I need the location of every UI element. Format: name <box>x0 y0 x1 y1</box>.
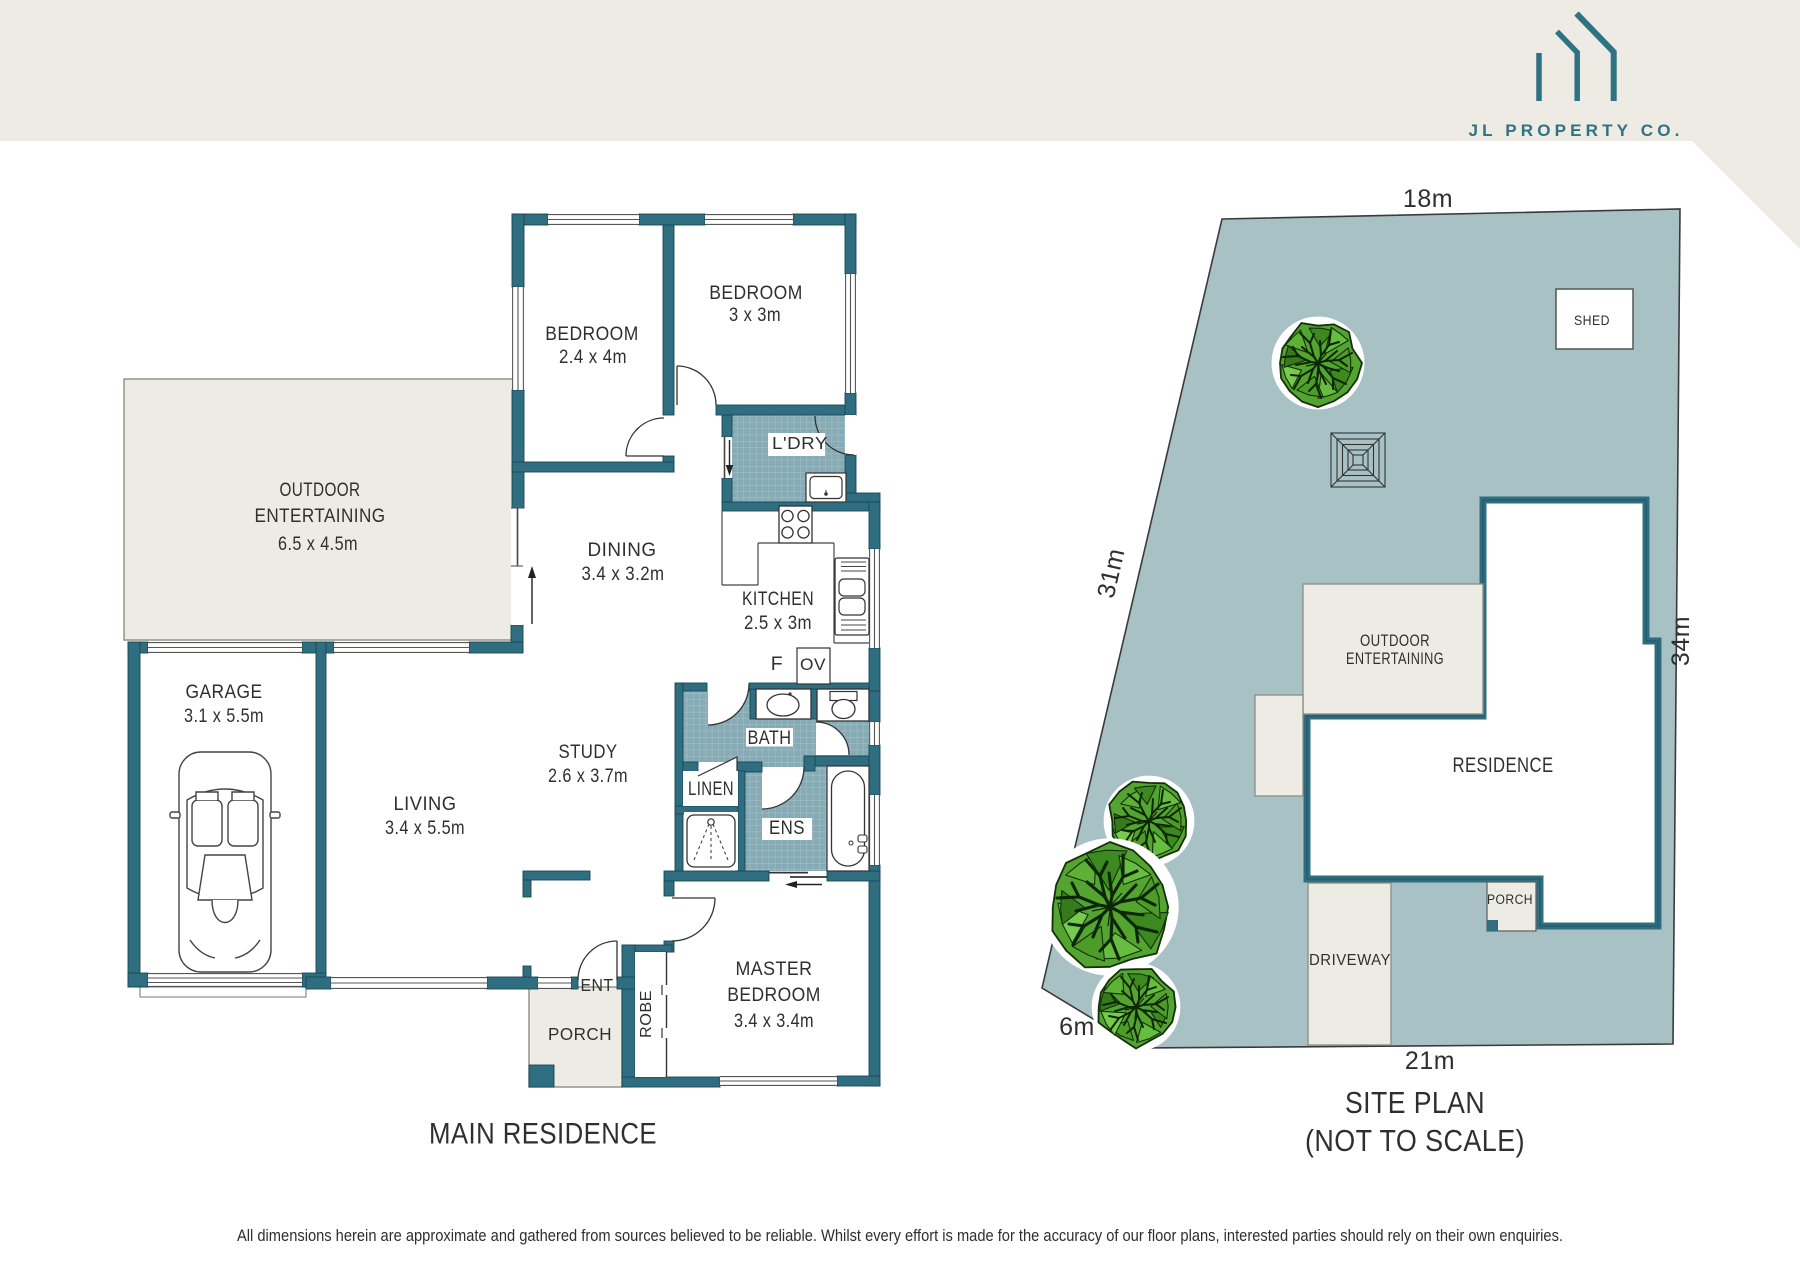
svg-text:RESIDENCE: RESIDENCE <box>1453 754 1554 777</box>
svg-text:3.4 x 5.5m: 3.4 x 5.5m <box>385 817 465 839</box>
svg-text:21m: 21m <box>1405 1047 1455 1075</box>
svg-text:BEDROOM: BEDROOM <box>727 984 821 1006</box>
svg-text:PORCH: PORCH <box>548 1024 612 1044</box>
svg-text:3 x 3m: 3 x 3m <box>729 304 781 326</box>
svg-text:34m: 34m <box>1667 616 1695 666</box>
svg-text:F: F <box>771 653 783 675</box>
svg-text:BEDROOM: BEDROOM <box>709 282 803 304</box>
svg-text:ENS: ENS <box>769 818 805 839</box>
svg-text:PORCH: PORCH <box>1487 892 1533 907</box>
svg-text:31m: 31m <box>1092 546 1131 601</box>
svg-text:3.4 x 3.2m: 3.4 x 3.2m <box>582 563 665 585</box>
svg-text:MAIN RESIDENCE: MAIN RESIDENCE <box>429 1118 657 1151</box>
svg-text:2.5 x 3m: 2.5 x 3m <box>744 612 812 634</box>
svg-text:GARAGE: GARAGE <box>186 681 263 703</box>
svg-text:ENTERTAINING: ENTERTAINING <box>255 505 386 527</box>
svg-text:SITE PLAN: SITE PLAN <box>1345 1086 1485 1120</box>
svg-text:DRIVEWAY: DRIVEWAY <box>1309 952 1391 969</box>
svg-text:MASTER: MASTER <box>736 958 813 980</box>
svg-text:6m: 6m <box>1059 1013 1095 1041</box>
svg-text:18m: 18m <box>1403 185 1453 213</box>
svg-text:OV: OV <box>800 655 826 674</box>
svg-text:2.6 x 3.7m: 2.6 x 3.7m <box>548 765 628 787</box>
svg-text:(NOT TO SCALE): (NOT TO SCALE) <box>1305 1124 1525 1158</box>
svg-text:OUTDOOR: OUTDOOR <box>280 479 361 501</box>
svg-text:ROBE: ROBE <box>638 990 655 1038</box>
svg-text:6.5 x 4.5m: 6.5 x 4.5m <box>278 533 358 555</box>
svg-text:LINEN: LINEN <box>688 779 734 800</box>
svg-text:BATH: BATH <box>748 727 792 749</box>
svg-text:JL PROPERTY CO.: JL PROPERTY CO. <box>1469 122 1684 140</box>
svg-text:SHED: SHED <box>1574 313 1610 328</box>
svg-text:ENT: ENT <box>581 975 614 995</box>
svg-text:BEDROOM: BEDROOM <box>545 323 639 345</box>
svg-text:3.4 x 3.4m: 3.4 x 3.4m <box>734 1010 814 1032</box>
svg-text:L'DRY: L'DRY <box>772 433 828 453</box>
svg-text:LIVING: LIVING <box>394 793 457 815</box>
svg-text:2.4 x 4m: 2.4 x 4m <box>559 346 627 368</box>
svg-text:All dimensions herein are appr: All dimensions herein are approximate an… <box>237 1226 1563 1245</box>
svg-text:STUDY: STUDY <box>559 741 618 763</box>
svg-text:DINING: DINING <box>588 539 657 561</box>
svg-text:OUTDOOR: OUTDOOR <box>1360 631 1430 650</box>
svg-text:ENTERTAINING: ENTERTAINING <box>1346 649 1444 668</box>
svg-text:3.1 x 5.5m: 3.1 x 5.5m <box>184 705 264 727</box>
svg-text:KITCHEN: KITCHEN <box>742 588 814 610</box>
